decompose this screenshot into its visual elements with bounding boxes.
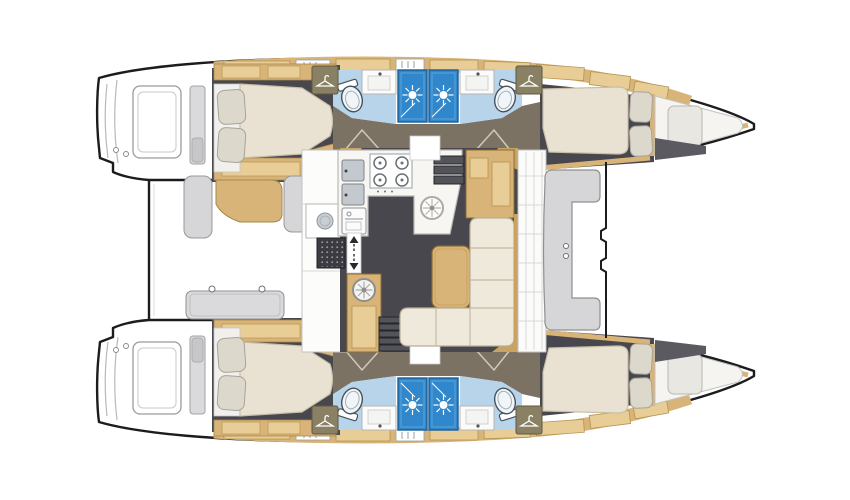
cup-holder: [564, 254, 569, 259]
round-sink: [317, 213, 333, 229]
cleat: [209, 286, 215, 292]
wardrobe-hanger-icon: [312, 66, 338, 94]
companionway-arrows-icon: [347, 233, 361, 273]
deck-hatch-fan-icon: [353, 279, 375, 301]
cleat: [259, 286, 265, 292]
cockpit-table: [186, 291, 284, 319]
galley-cabinet: [347, 274, 381, 352]
catamaran-floorplan: [0, 0, 850, 500]
wardrobe-hanger-icon: [516, 406, 542, 434]
salon-table: [432, 246, 470, 308]
cockpit-seat: [216, 180, 282, 222]
navigation-station: [466, 150, 514, 218]
corridor-door: [410, 136, 440, 160]
aft-cockpit: [184, 176, 308, 319]
trampoline-edge: [601, 162, 606, 338]
cup-holder: [564, 244, 569, 249]
forward-cockpit-bench: [544, 170, 601, 330]
cockpit-cushion: [184, 176, 212, 238]
salon-front-windows: [518, 150, 546, 352]
deck-hatch-fan-icon: [421, 197, 443, 219]
stove-icon: [370, 154, 412, 193]
floorplan-svg: [0, 0, 850, 500]
wardrobe-hanger-icon: [516, 66, 542, 94]
wardrobe-hanger-icon: [312, 406, 338, 434]
oven-icon: [342, 208, 366, 234]
